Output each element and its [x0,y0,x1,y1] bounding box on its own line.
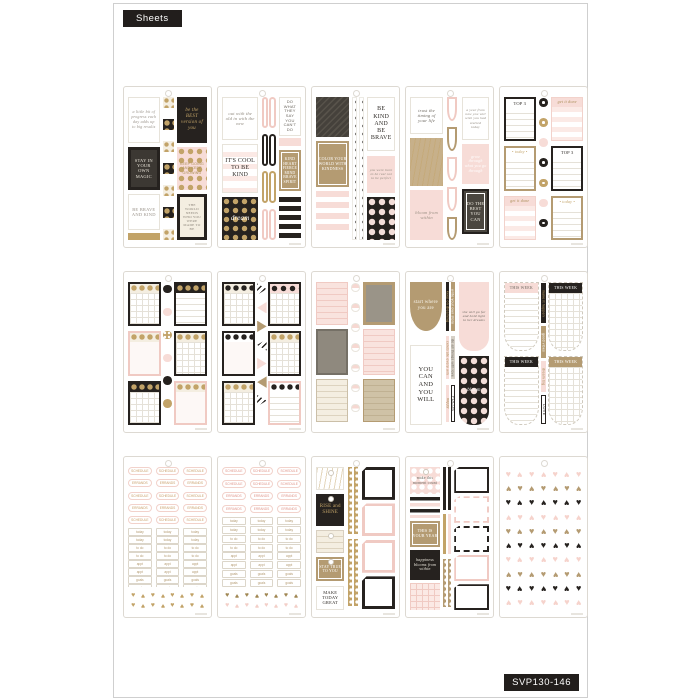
word-label: to do [277,544,301,552]
sticker-body [506,157,534,188]
sticker-text: TOP 3 [553,149,581,156]
word-label: to do [183,544,207,552]
sticker-dots [443,559,446,608]
heart-icon: ♥ [564,470,569,479]
sticker-sheet-word-labels-gold-hearts: SCHEDULESCHEDULESCHEDULEERRANDSERRANDSER… [123,456,212,618]
heart-icon: ♥ [294,602,298,609]
heart-icon: ♥ [529,570,534,579]
heart-icon: ♥ [529,498,534,507]
word-label: to do [250,535,274,543]
heart-icon: ♥ [553,584,558,593]
heart-icon: ♥ [235,602,239,609]
heart-icon: ♥ [529,470,534,479]
sticker-box: write your own story [451,282,455,331]
heart-icon: ♥ [541,527,546,536]
sticker-fullbox [268,282,301,326]
heart-icon: ♥ [506,484,511,493]
sticker-dots [163,97,174,108]
sku-tag: SVP130-146 [504,674,579,691]
word-label: appt [156,560,180,568]
heart-icon: ♥ [161,602,165,609]
word-label: today [183,528,207,536]
heart-icon: ♥ [517,555,522,564]
sheet-content [222,282,301,425]
sticker-archlist: THIS WEEK [548,282,583,351]
sticker-tri-r [257,283,266,294]
word-label: today [128,528,152,536]
sticker-sheet-trust-the-timing: trust the timing of your lifebloom from … [405,86,494,248]
sticker-fullbox [128,282,161,326]
heart-icon: ♥ [564,513,569,522]
word-label: appt [156,568,180,576]
sticker-archlist: THIS WEEK [504,282,539,351]
sticker-circle [539,199,548,208]
word-label: goals [156,584,180,587]
sticker-fold [454,526,489,552]
word-label: today [250,517,274,525]
heart-icon: ♥ [255,592,259,599]
sticker-body [130,392,159,423]
sticker-fullbox: • today • [551,196,583,240]
heart-icon: ♥ [131,602,135,609]
sticker-fullbox: TOP 3 [551,146,583,190]
sticker-tri-r [257,321,266,332]
sticker-sheet-bookmarks-you-can: start where you areYOU CAN AND YOU WILLk… [405,271,494,433]
sticker-tri-l [257,302,266,313]
sticker-tri-r [257,358,266,369]
sticker-circle [351,283,360,292]
heart-icon: ♥ [541,541,546,550]
sheet-content: THIS WEEKTHIS WEEKTHIS WEEKTHIS WEEKmake… [504,282,583,425]
heart-icon: ♥ [541,570,546,579]
sticker-heartgrid: ♥♥♥♥♥♥♥♥♥♥♥♥♥♥♥♥♥♥♥♥♥♥♥♥♥♥♥♥♥♥♥♥♥♥♥♥♥♥♥♥… [506,470,582,607]
sticker-box [269,134,275,165]
word-label: SCHEDULE [183,516,207,524]
sticker-box: trust the timing of your life [410,97,443,134]
sticker-text: FOCUS [451,387,455,421]
sticker-text: bloom from within [410,209,443,222]
label-row: apptapptappt [222,552,301,560]
word-label: to do [250,544,274,552]
word-label: today [222,526,246,534]
sticker-header: THIS WEEK [505,283,538,293]
label-row: to doto doto do [128,544,207,552]
heart-icon: ♥ [141,592,145,599]
heart-icon: ♥ [506,527,511,536]
heart-icon: ♥ [553,541,558,550]
heart-icon: ♥ [517,527,522,536]
heart-icon: ♥ [576,570,581,579]
heart-icon: ♥ [274,602,278,609]
sticker-text: THIS WEEK [505,285,538,292]
word-label: goals [156,576,180,584]
heart-row: ♥♥♥♥♥♥♥ [506,584,582,593]
sticker-text: THIS WEEK [505,359,538,366]
sticker-sheet-rise-and-shine-tags: RISE and SHINESTAY TRUE TO YOUMAKE TODAY… [311,456,400,618]
sticker-text: celebrate every win [446,337,450,378]
label-row: to doto doto do [222,535,301,543]
sticker-body [552,107,582,140]
sticker-circle [539,179,548,188]
sticker-header: get it done [552,98,582,107]
heart-icon: ♥ [576,513,581,522]
sticker-text: • today • [506,149,534,156]
heart-icon: ♥ [190,592,194,599]
word-label: SCHEDULE [277,467,301,475]
sticker-box: happy [446,385,450,422]
heart-icon: ♥ [200,602,204,609]
sticker-text: trust the timing of your life [411,107,442,125]
sticker-box: THIS IS YOUR YEAR [410,521,440,547]
heart-icon: ♥ [553,598,558,607]
word-label: appt [250,561,274,569]
label-row: todaytodaytoday [128,528,207,536]
word-label: goals [277,579,301,587]
sticker-box: happiness blooms from within [410,550,440,580]
word-label: ERRANDS [222,492,246,500]
heart-icon: ♥ [517,470,522,479]
sticker-header [270,333,299,342]
sticker-text: you were born to be real not to be perfe… [367,167,395,181]
sticker-box [269,209,275,240]
sticker-text: DO WHAT THEY SAY YOU CAN'T DO [280,99,300,134]
sticker-box: DO THE BEST YOU CAN [462,189,489,235]
sticker-labelrows: SCHEDULESCHEDULESCHEDULESCHEDULESCHEDULE… [222,467,301,513]
heart-icon: ♥ [553,498,558,507]
sticker-box: a year from now you will wish you had st… [462,97,489,140]
label-row: apptapptappt [128,568,207,576]
sticker-hstripes [279,197,301,240]
label-row: goalsgoalsgoals [128,584,207,587]
label-row: SCHEDULESCHEDULESCHEDULE [222,480,301,488]
word-label: SCHEDULE [183,467,207,475]
heart-icon: ♥ [541,598,546,607]
sticker-body [130,342,159,373]
sticker-fullbox: • today • [504,146,536,190]
sticker-body [506,108,534,139]
heart-icon: ♥ [529,527,534,536]
word-label: ERRANDS [128,479,152,487]
sticker-text: THIS WEEK [549,285,582,292]
label-row: ERRANDSERRANDSERRANDS [128,479,207,487]
sticker-sheet-checklist-boxes-circles [123,271,212,433]
sheet-content: trust the timing of your lifebloom from … [410,97,489,240]
sticker-box: a little bit of progress each day adds u… [128,97,160,143]
heart-icon: ♥ [255,602,259,609]
sticker-sheet-hearts-sheet: ♥♥♥♥♥♥♥♥♥♥♥♥♥♥♥♥♥♥♥♥♥♥♥♥♥♥♥♥♥♥♥♥♥♥♥♥♥♥♥♥… [499,456,588,618]
punch-hole [328,470,334,476]
sticker-circle [539,158,548,167]
sticker-wood [410,138,443,185]
sticker-lines [316,530,344,553]
heart-icon: ♥ [506,470,511,479]
sticker-box [262,97,268,128]
sticker-header [130,383,159,392]
heart-row: ♥♥♥♥♥♥♥ [506,570,582,579]
sticker-box: LOVE [541,395,547,424]
sticker-box [128,233,160,240]
word-label: ERRANDS [250,492,274,500]
sticker-tristripes [410,497,440,518]
sticker-circle [539,138,548,147]
punch-hole [328,533,334,539]
sticker-text: BE KIND AND BE BRAVE [368,105,394,142]
word-label: goals [128,584,152,587]
sticker-fullbox [222,282,255,326]
word-label: appt [183,568,207,576]
label-row: SCHEDULESCHEDULESCHEDULE [128,492,207,500]
sticker-sheet-moment-count-tags: make this moment countTHIS IS YOUR YEARh… [405,456,494,618]
word-label: SCHEDULE [250,467,274,475]
heart-icon: ♥ [245,592,249,599]
heart-icon: ♥ [541,470,546,479]
sticker-circle [351,364,360,373]
sticker-fullbox [268,381,301,425]
sheet-content: out with the old in with the newIT'S COO… [222,97,301,240]
sticker-text: COLOR YOUR WORLD WITH KINDNESS [316,156,349,172]
sticker-lines [316,379,348,422]
heart-icon: ♥ [553,570,558,579]
word-label: ERRANDS [156,479,180,487]
word-label: today [277,526,301,534]
sticker-text: dream [222,213,258,223]
word-label: appt [222,552,246,560]
sticker-text: THIS WEEK [549,359,582,366]
heart-icon: ♥ [235,592,239,599]
sticker-bookmark: bloom [459,356,489,425]
sticker-fullbox [128,381,161,425]
sticker-lines [363,329,395,375]
heart-icon: ♥ [225,602,229,609]
sticker-text: keep on dreaming [446,283,450,330]
sticker-labelrows: todaytodaytodaytodaytodaytodayto doto do… [128,528,207,587]
sticker-text: happy [446,386,450,422]
sticker-sheet-top-3-lists: TOP 3get it done• today •TOP 3get it don… [499,86,588,248]
sticker-box: bloom from within [410,190,443,240]
sticker-header: TOP 3 [506,99,534,108]
sticker-circle [163,331,172,340]
sticker-body [549,293,582,350]
sticker-box: you were born to be real not to be perfe… [367,156,395,193]
word-label: SCHEDULE [128,492,152,500]
word-label: today [156,528,180,536]
heart-icon: ♥ [151,602,155,609]
sticker-archlist: THIS WEEK [504,356,539,425]
sticker-circle [163,399,172,408]
sticker-box: THE WORLD NEEDS WHO YOU WERE MADE TO BE [177,194,207,240]
sticker-body [270,293,299,324]
heart-icon: ♥ [161,592,165,599]
heart-icon: ♥ [541,555,546,564]
sticker-fold [454,496,489,522]
word-label: goals [222,579,246,587]
label-row: apptapptappt [128,560,207,568]
sticker-text: start where you are [410,299,442,313]
heart-icon: ♥ [200,592,204,599]
sticker-box: be the BEST version of you [177,97,207,143]
heart-icon: ♥ [517,570,522,579]
sticker-fold [362,503,395,536]
product-image: Sheets SVP130-146 a little bit of progre… [0,0,700,700]
sticker-circle [539,219,548,228]
sticker-text: TOP 3 [506,100,534,107]
word-label: SCHEDULE [250,480,274,488]
heart-icon: ♥ [284,602,288,609]
sticker-fullbox [222,381,255,425]
heart-row: ♥♥♥♥♥♥♥ [506,470,582,479]
heart-icon: ♥ [506,570,511,579]
sticker-circle [539,118,548,127]
sticker-sheet-this-week-lists: THIS WEEKTHIS WEEKTHIS WEEKTHIS WEEKmake… [499,271,588,433]
label-row: SCHEDULESCHEDULESCHEDULE [222,467,301,475]
heart-icon: ♥ [564,541,569,550]
heart-icon: ♥ [541,498,546,507]
sticker-tri-l [257,376,266,387]
heart-icon: ♥ [576,555,581,564]
heart-icon: ♥ [517,498,522,507]
word-label: appt [222,561,246,569]
heart-icon: ♥ [576,527,581,536]
sticker-header [270,284,299,293]
heart-icon: ♥ [264,602,268,609]
sticker-text: get it done [505,198,535,205]
sticker-sheet-word-labels-pink-hearts: SCHEDULESCHEDULESCHEDULESCHEDULESCHEDULE… [217,456,306,618]
sticker-grid [410,583,440,610]
heart-icon: ♥ [517,513,522,522]
sticker-text: YOU CAN AND YOU WILL [411,365,441,405]
sheet-content: RISE and SHINESTAY TRUE TO YOUMAKE TODAY… [316,467,395,610]
word-label: goals [128,576,152,584]
sticker-archb [447,187,457,211]
sticker-header [176,284,205,293]
sticker-fullbox: get it done [504,196,536,240]
punch-hole [328,559,334,565]
sticker-text: BE BRAVE AND KIND [129,206,159,219]
word-label: goals [183,584,207,587]
sticker-dots: make this moment count [410,467,440,494]
sticker-box: out with the old in with the new [222,97,258,140]
heart-icon: ♥ [564,584,569,593]
sticker-box: RISE and SHINE [316,494,344,525]
heart-icon: ♥ [564,498,569,507]
sticker-header: • today • [553,198,581,207]
heart-row: ♥♥♥♥♥♥♥ [506,484,582,493]
sticker-box [262,171,268,202]
sticker-box: keep on dreaming [446,282,450,331]
sticker-circle [163,354,172,363]
sticker-header: THIS WEEK [549,283,582,293]
sticker-dots [352,97,357,240]
sticker-text: make this moment count [410,475,440,486]
label-row: apptapptappt [222,561,301,569]
sticker-dots [348,539,352,606]
word-label: to do [277,535,301,543]
sticker-circle [351,303,360,312]
sticker-labelrows: SCHEDULESCHEDULESCHEDULEERRANDSERRANDSER… [128,467,207,524]
sticker-box [443,467,446,510]
sticker-dots [163,185,174,196]
sticker-wood [316,467,344,490]
sticker-box [262,209,268,240]
sticker-fullbox [268,331,301,375]
heart-icon: ♥ [506,584,511,593]
heart-icon: ♥ [564,555,569,564]
sticker-hearts: ♥♥♥♥♥♥♥♥ [131,591,204,600]
sticker-hstripes [316,191,349,234]
sticker-box [363,282,395,325]
sticker-header: get it done [505,197,535,206]
sticker-dots [448,559,451,608]
sticker-body [505,293,538,350]
heart-icon: ♥ [506,555,511,564]
heart-icon: ♥ [541,513,546,522]
sticker-text: good vibes [541,327,547,357]
sticker-box: dream big [541,361,547,392]
sticker-text: STAY TRUE TO YOU [316,564,344,575]
sticker-body [505,206,535,239]
sticker-body [553,157,581,188]
sticker-box: good vibes [541,326,547,357]
sticker-box [269,171,275,202]
sticker-circle [539,98,548,107]
heart-icon: ♥ [517,541,522,550]
sticker-lines [316,282,348,325]
sticker-text: a little bit of progress each day adds u… [129,109,159,130]
heart-row: ♥♥♥♥♥♥♥ [506,513,582,522]
sticker-dots: dream [222,197,258,240]
word-label: today [156,536,180,544]
sticker-circle [351,404,360,413]
heart-icon: ♥ [529,598,534,607]
sheet-content: ♥♥♥♥♥♥♥♥♥♥♥♥♥♥♥♥♥♥♥♥♥♥♥♥♥♥♥♥♥♥♥♥♥♥♥♥♥♥♥♥… [504,467,583,610]
word-label: today [183,536,207,544]
sticker-archb [447,157,457,181]
label-row: todaytodaytoday [128,536,207,544]
sheet-content: SCHEDULESCHEDULESCHEDULEERRANDSERRANDSER… [128,467,207,610]
sticker-box [262,134,268,165]
sticker-box: BE KIND AND BE BRAVE [367,97,395,151]
word-label: ERRANDS [277,492,301,500]
word-label: goals [250,570,274,578]
word-label: ERRANDS [156,504,180,512]
heart-icon: ♥ [131,592,135,599]
sticker-fullbox: TOP 3 [504,97,536,141]
heart-icon: ♥ [564,570,569,579]
sticker-fold [362,467,395,500]
sticker-body [224,392,253,423]
sticker-header [270,383,299,392]
sticker-header: THIS WEEK [549,357,582,367]
sticker-box: celebrate every win [446,336,450,379]
sheet-content: start where you areYOU CAN AND YOU WILLk… [410,282,489,425]
sticker-circle [351,343,360,352]
sticker-box [448,467,451,510]
sheet-content: COLOR YOUR WORLD WITH KINDNESSBE KIND AN… [316,97,395,240]
sticker-archb [447,217,457,240]
label-row: todaytodaytoday [222,526,301,534]
sticker-fold [362,540,395,573]
word-label: ERRANDS [222,505,246,513]
sticker-text: grow through what you go through [462,154,489,175]
sticker-circle [351,323,360,332]
word-label: to do [128,552,152,560]
sticker-box: BE BRAVE AND KIND [128,194,160,230]
sticker-header [224,333,253,342]
word-label: SCHEDULE [156,516,180,524]
sticker-header: • today • [506,148,534,157]
sticker-hearts: ♥♥♥♥♥♥♥♥ [225,591,298,600]
heart-icon: ♥ [529,513,534,522]
